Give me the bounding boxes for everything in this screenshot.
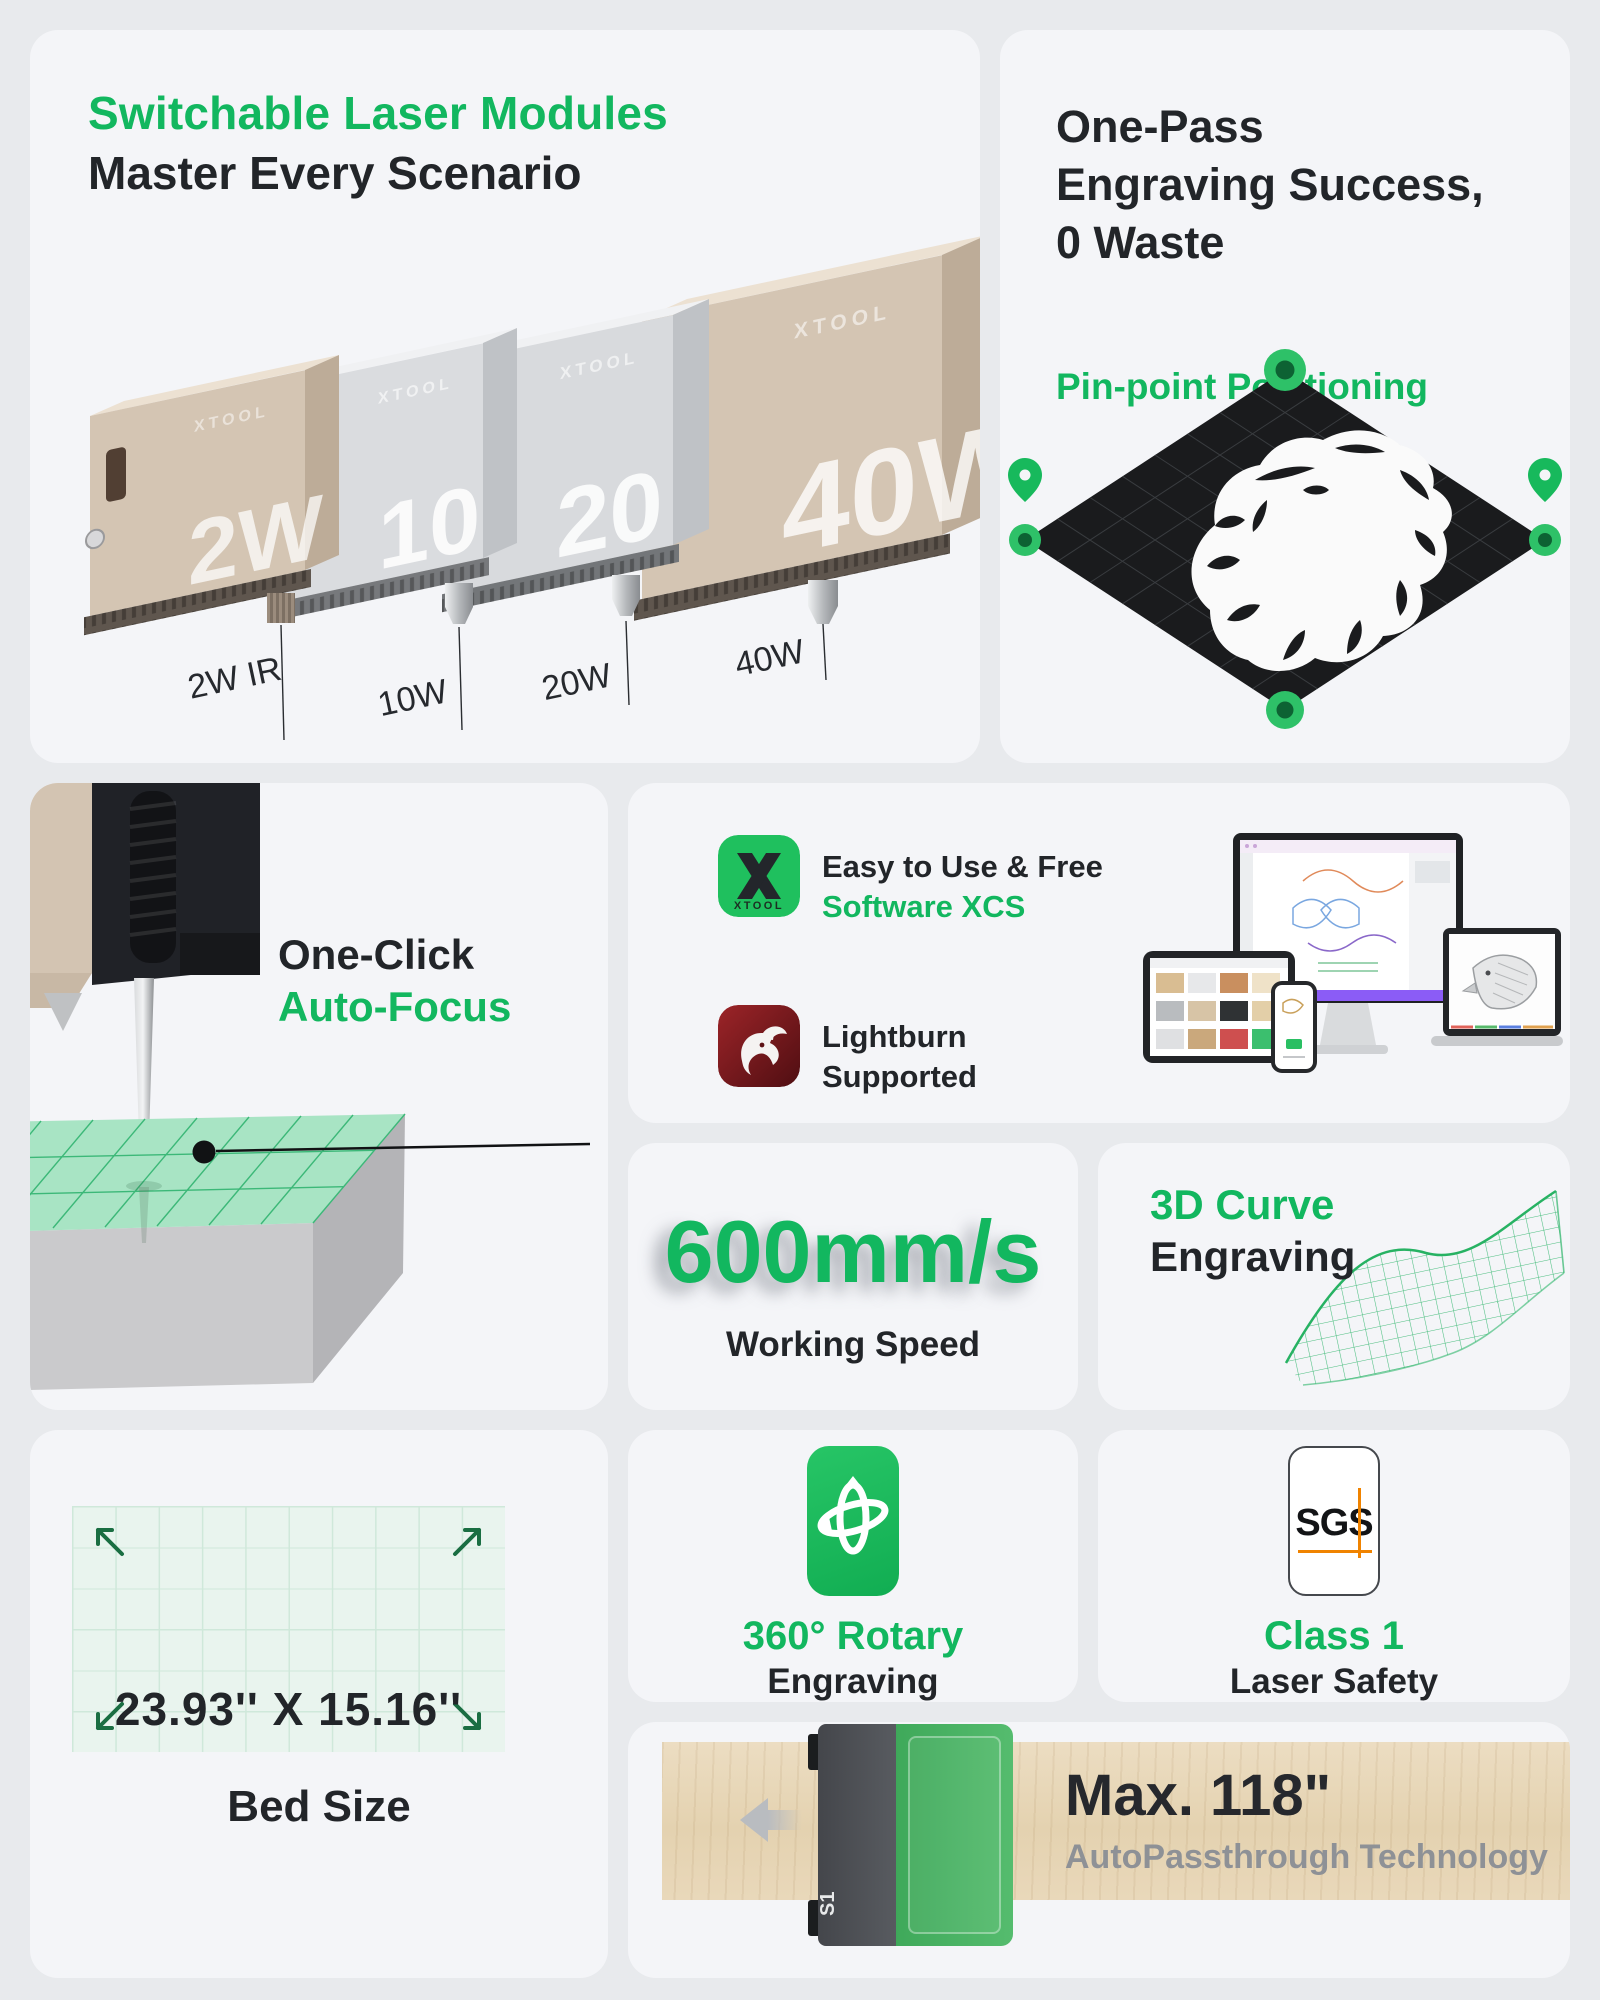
module-label-10w: 10W xyxy=(375,672,451,724)
sgs-crossline xyxy=(1358,1488,1361,1558)
machine-lid xyxy=(896,1724,1013,1946)
expand-arrow-top-right-icon xyxy=(445,1520,489,1564)
lightburn-line1: Lightburn xyxy=(822,1019,967,1055)
module-face-mark: 20 xyxy=(556,448,663,578)
infographic-page: Switchable Laser Modules Master Every Sc… xyxy=(0,0,1600,2000)
laptop xyxy=(1431,928,1563,1046)
rotary-icon xyxy=(807,1446,899,1596)
card-3d-curve: 3D Curve Engraving xyxy=(1098,1143,1570,1410)
passthrough-subtitle: AutoPassthrough Technology xyxy=(1065,1838,1548,1877)
laser-nozzle xyxy=(808,580,838,624)
feed-arrow-icon xyxy=(740,1798,768,1842)
card-autofocus: One-Click Auto-Focus xyxy=(30,783,608,1410)
laser-modules-illustration: XTOOL 40W XTOOL 20 xyxy=(30,215,980,763)
machine-top-view: S1 xyxy=(808,1724,1013,1946)
xcs-logo-icon: XTOOL xyxy=(718,835,800,917)
machine-body: S1 xyxy=(818,1724,896,1946)
sgs-badge-text: SGS xyxy=(1290,1502,1378,1545)
xcs-subheading: Software XCS xyxy=(822,889,1025,925)
speed-label: Working Speed xyxy=(628,1325,1078,1365)
bed-grid: 23.93'' X 15.16'' xyxy=(72,1506,505,1752)
position-marker-top xyxy=(1264,349,1306,391)
laser-nozzle xyxy=(445,583,473,624)
feed-arrow-tail xyxy=(768,1810,802,1830)
safety-title-dark: Laser Safety xyxy=(1098,1662,1570,1702)
module-label-2w-ir: 2W IR xyxy=(185,650,285,707)
passthrough-title: Max. 118" xyxy=(1065,1762,1331,1829)
devices-illustration xyxy=(1143,833,1563,1098)
card-pinpoint-positioning: One-Pass Engraving Success, 0 Waste Pin-… xyxy=(1000,30,1570,763)
card-rotary-engraving: 360° Rotary Engraving xyxy=(628,1430,1078,1702)
module-label-20w: 20W xyxy=(539,656,615,708)
position-marker-left xyxy=(1008,458,1042,556)
position-marker-right xyxy=(1528,458,1562,556)
xcs-logo-label: XTOOL xyxy=(734,900,784,912)
sgs-badge: SGS xyxy=(1288,1446,1380,1596)
onepass-title-line1: One-Pass xyxy=(1056,98,1264,156)
module-face-mark: 10 xyxy=(378,465,480,590)
card-passthrough: S1 Max. 118" AutoPassthrough Technology xyxy=(628,1722,1570,1978)
rotary-title-green: 360° Rotary xyxy=(628,1614,1078,1659)
phone xyxy=(1271,981,1317,1073)
expand-arrow-top-left-icon xyxy=(88,1520,132,1564)
position-marker-bottom xyxy=(1266,691,1304,729)
autofocus-title-green: Auto-Focus xyxy=(278,983,511,1031)
lightburn-line2: Supported xyxy=(822,1059,977,1095)
curve-title-green: 3D Curve xyxy=(1150,1181,1334,1229)
card-working-speed: 600mm/s Working Speed xyxy=(628,1143,1078,1410)
speed-value: 600mm/s xyxy=(628,1201,1078,1303)
onepass-title-line2: Engraving Success, xyxy=(1056,156,1484,214)
autofocus-illustration xyxy=(30,783,608,1410)
card-bed-size: 23.93'' X 15.16'' Bed Size xyxy=(30,1430,608,1978)
xcs-heading: Easy to Use & Free xyxy=(822,849,1103,885)
autofocus-title-dark: One-Click xyxy=(278,931,474,979)
lightburn-logo-icon xyxy=(718,1005,800,1087)
card-software: XTOOL Easy to Use & Free Software XCS Li… xyxy=(628,783,1570,1123)
machine-model-label: S1 xyxy=(817,1892,840,1916)
bed-dimensions: 23.93'' X 15.16'' xyxy=(72,1682,505,1736)
card-laser-modules: Switchable Laser Modules Master Every Sc… xyxy=(30,30,980,763)
curve-title-dark: Engraving xyxy=(1150,1233,1355,1281)
ir-lens-barrel xyxy=(267,593,295,623)
onepass-title-line3: 0 Waste xyxy=(1056,214,1224,272)
modules-subtitle: Master Every Scenario xyxy=(88,146,582,200)
rotary-title-dark: Engraving xyxy=(628,1662,1078,1702)
safety-title-green: Class 1 xyxy=(1098,1614,1570,1659)
positioning-preview xyxy=(1005,330,1565,760)
modules-title: Switchable Laser Modules xyxy=(88,86,668,140)
bed-size-label: Bed Size xyxy=(30,1782,608,1832)
module-label-40w: 40W xyxy=(732,632,808,684)
card-laser-safety: SGS Class 1 Laser Safety xyxy=(1098,1430,1570,1702)
